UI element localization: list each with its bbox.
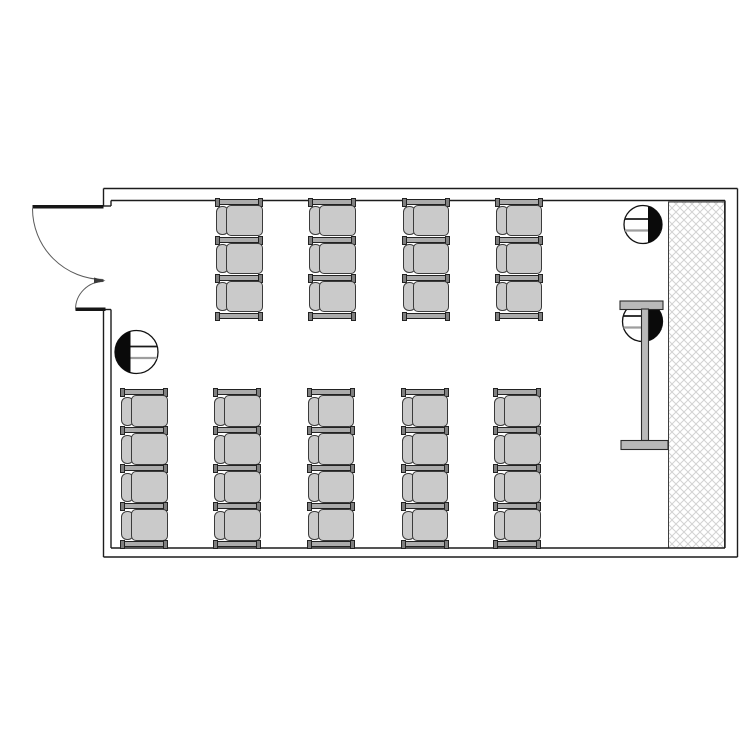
tablet-rail xyxy=(215,313,263,319)
tablet-rail xyxy=(213,541,261,547)
tablet-rail xyxy=(215,275,263,281)
tablet-rail xyxy=(402,237,450,243)
tablet-rail xyxy=(402,275,450,281)
chair-seat xyxy=(224,433,261,465)
chair-seat xyxy=(506,205,543,237)
chair-seat xyxy=(226,205,263,237)
chair-seat xyxy=(131,509,168,541)
chair-seat xyxy=(319,243,356,275)
chair-seat xyxy=(413,205,450,237)
chair-seat xyxy=(224,395,261,427)
chair-seat xyxy=(504,433,541,465)
tablet-rail xyxy=(495,199,543,205)
chair-seat xyxy=(131,471,168,503)
chair-seat xyxy=(318,509,355,541)
chair-seat xyxy=(504,509,541,541)
chair-seat xyxy=(131,395,168,427)
tablet-rail xyxy=(215,199,263,205)
chair-seat xyxy=(506,281,543,313)
chair-seat xyxy=(131,433,168,465)
tablet-rail xyxy=(493,541,541,547)
tablet-rail xyxy=(308,275,356,281)
chair-seat xyxy=(412,433,449,465)
chair-seat xyxy=(413,281,450,313)
tablet-rail xyxy=(307,541,355,547)
chair-seat xyxy=(224,509,261,541)
tablet-rail xyxy=(215,237,263,243)
chair-seat xyxy=(319,205,356,237)
chair-seat xyxy=(412,395,449,427)
tablet-rail xyxy=(401,541,449,547)
chair-seat xyxy=(226,243,263,275)
tablet-rail xyxy=(495,237,543,243)
chair-seat xyxy=(318,471,355,503)
chair-seat xyxy=(224,471,261,503)
seating-layer xyxy=(0,0,750,750)
tablet-rail xyxy=(495,275,543,281)
chair-seat xyxy=(504,395,541,427)
tablet-rail xyxy=(402,199,450,205)
chair-seat xyxy=(506,243,543,275)
chair-seat xyxy=(412,471,449,503)
chair-seat xyxy=(318,395,355,427)
tablet-rail xyxy=(308,237,356,243)
tablet-rail xyxy=(495,313,543,319)
chair-seat xyxy=(413,243,450,275)
chair-seat xyxy=(412,509,449,541)
chair-seat xyxy=(226,281,263,313)
tablet-rail xyxy=(120,541,168,547)
chair-seat xyxy=(319,281,356,313)
tablet-rail xyxy=(402,313,450,319)
floor-plan-canvas xyxy=(0,0,750,750)
chair-seat xyxy=(504,471,541,503)
tablet-rail xyxy=(308,199,356,205)
chair-seat xyxy=(318,433,355,465)
tablet-rail xyxy=(308,313,356,319)
